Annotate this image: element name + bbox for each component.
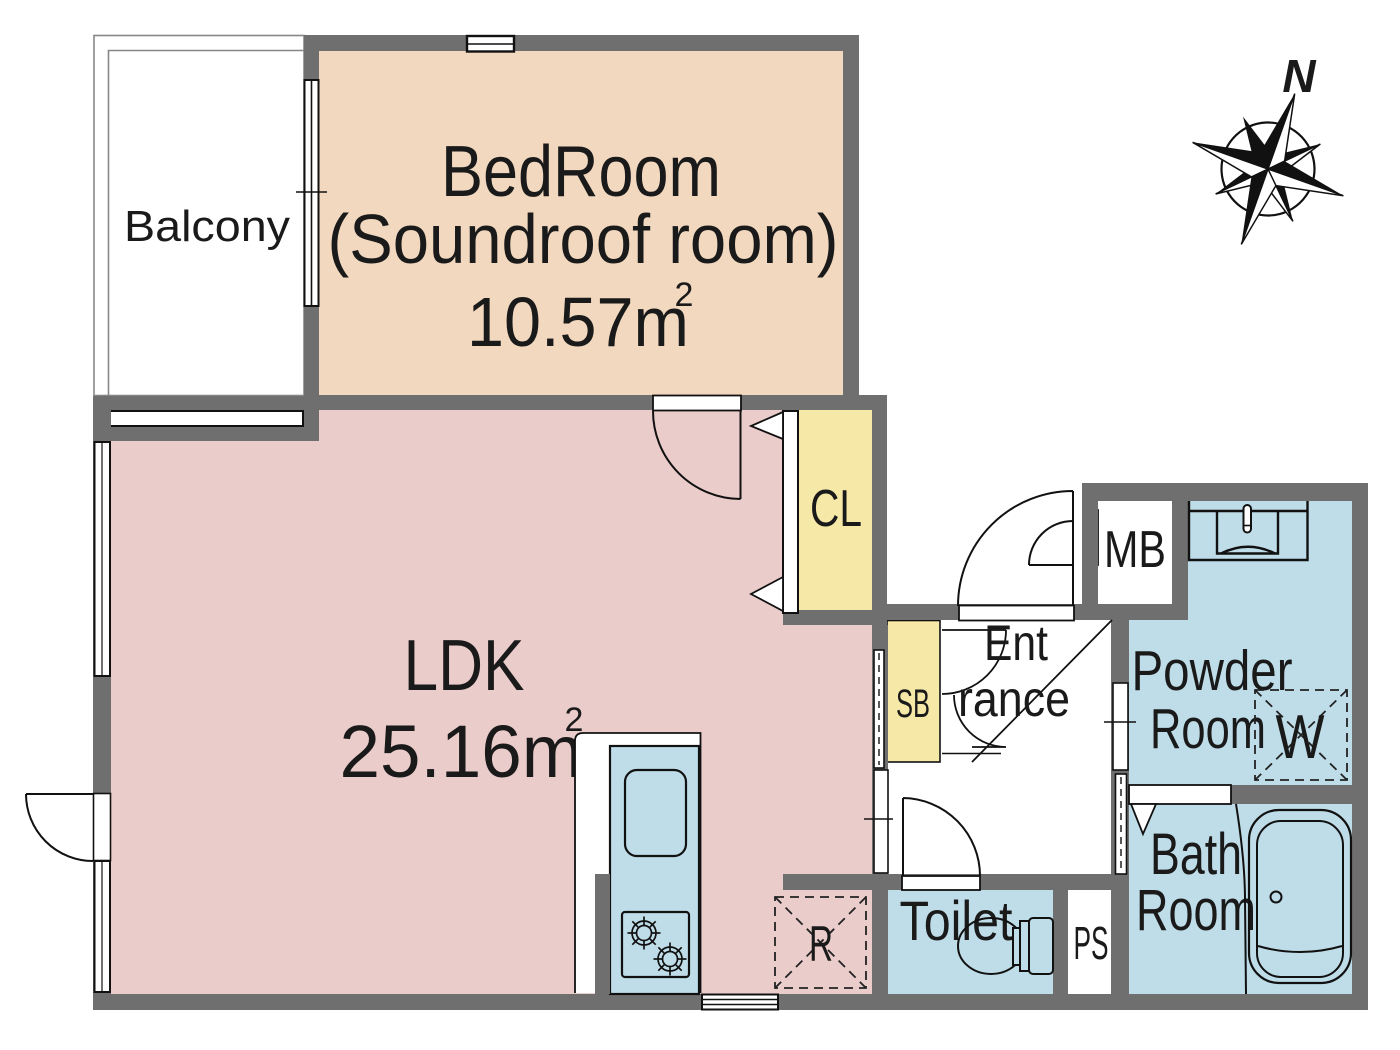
svg-text:Toilet: Toilet [900, 889, 1013, 952]
svg-text:Powder: Powder [1132, 639, 1293, 703]
svg-text:Room: Room [1150, 697, 1266, 761]
svg-text:PS: PS [1074, 917, 1109, 969]
svg-text:CL: CL [810, 480, 862, 538]
svg-text:Ent: Ent [984, 615, 1048, 671]
svg-text:10.57m: 10.57m [467, 283, 689, 361]
svg-text:R: R [809, 916, 833, 972]
svg-text:Balcony: Balcony [124, 202, 290, 251]
svg-text:2: 2 [675, 276, 694, 314]
svg-text:MB: MB [1104, 521, 1166, 579]
svg-text:rance: rance [958, 671, 1070, 727]
svg-text:Room: Room [1136, 878, 1256, 943]
svg-text:W: W [1276, 703, 1325, 772]
svg-text:N: N [1282, 50, 1316, 102]
svg-text:(Soundroof room): (Soundroof room) [328, 200, 839, 278]
svg-text:SB: SB [896, 682, 930, 726]
svg-text:LDK: LDK [404, 626, 525, 706]
svg-text:25.16m: 25.16m [340, 710, 583, 793]
